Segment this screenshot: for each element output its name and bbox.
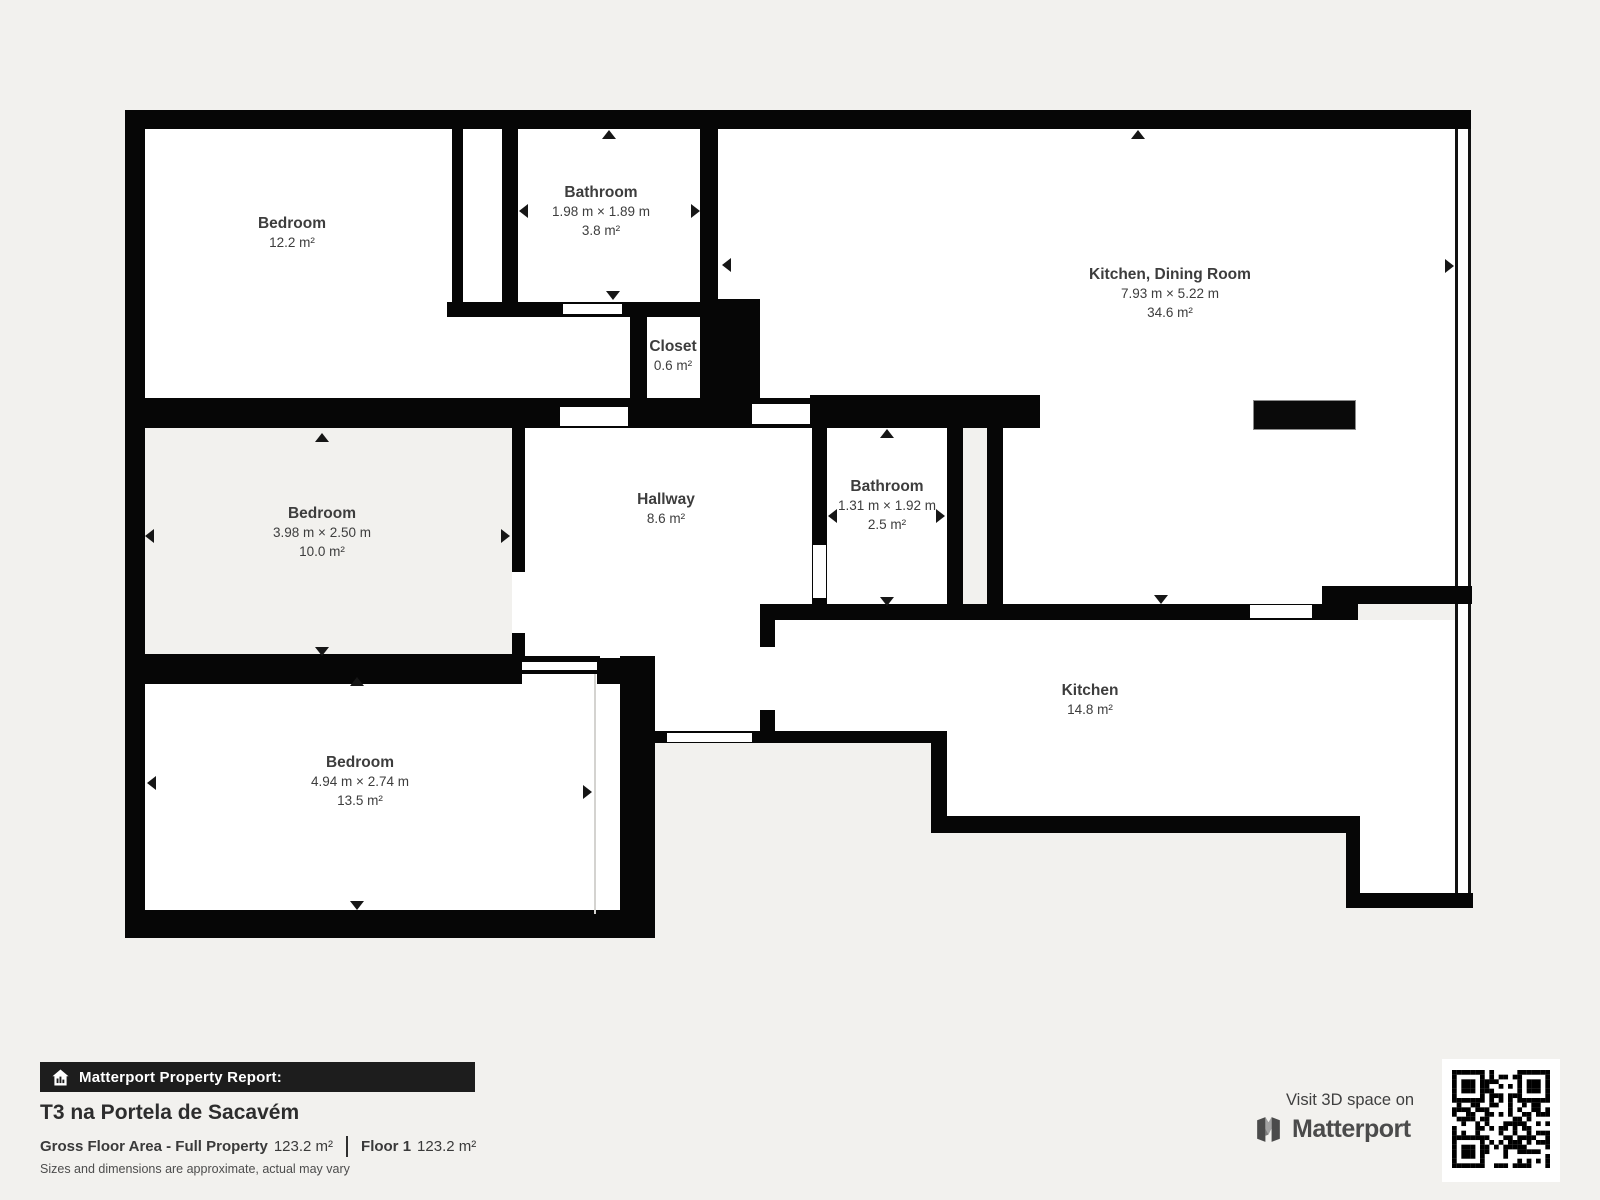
floor-area-summary: Gross Floor Area - Full Property 123.2 m…: [40, 1136, 476, 1157]
room-floor-shaft: [463, 128, 502, 302]
house-chart-icon: [52, 1069, 69, 1086]
wall: [810, 395, 1040, 428]
wall: [125, 654, 522, 684]
room-name: Hallway: [637, 490, 695, 509]
door-opening: [667, 733, 752, 742]
room-floor-kitchen-right: [1360, 620, 1457, 893]
dimension-arrow-left-icon: [519, 204, 528, 218]
gross-floor-area-label: Gross Floor Area - Full Property: [40, 1138, 268, 1155]
duct-void: [963, 425, 987, 605]
door-opening: [813, 545, 826, 598]
dimension-arrow-right-icon: [691, 204, 700, 218]
room-floor-bedroom-top-vestibule: [452, 317, 630, 407]
room-dimensions: 1.98 m × 1.89 m: [552, 202, 650, 221]
floor-value: 123.2 m²: [417, 1138, 476, 1155]
dimension-arrow-down-icon: [315, 647, 329, 656]
room-name: Kitchen: [1062, 681, 1119, 700]
wall: [700, 110, 718, 302]
room-area: 12.2 m²: [258, 233, 326, 252]
dimension-arrow-left-icon: [147, 776, 156, 790]
room-name: Closet: [649, 337, 696, 356]
wall: [620, 656, 655, 938]
room-floor-kitchen: [947, 620, 1360, 816]
room-label-bedroom-top: Bedroom 12.2 m²: [258, 214, 326, 252]
wall: [1322, 586, 1472, 604]
room-name: Bedroom: [311, 753, 409, 772]
disclaimer-note: Sizes and dimensions are approximate, ac…: [40, 1162, 350, 1176]
wall: [452, 110, 463, 302]
dimension-arrow-down-icon: [606, 291, 620, 300]
wall: [502, 110, 518, 302]
dimension-arrow-left-icon: [722, 258, 731, 272]
room-label-kitchen-dining: Kitchen, Dining Room 7.93 m × 5.22 m 34.…: [1089, 265, 1251, 322]
wall: [931, 731, 947, 820]
dimension-arrow-up-icon: [880, 429, 894, 438]
door-opening: [760, 647, 775, 710]
matterport-logo-icon: [1252, 1113, 1285, 1146]
wall: [1346, 893, 1473, 908]
matterport-wordmark: Matterport: [1292, 1115, 1411, 1144]
room-dimensions: 4.94 m × 2.74 m: [311, 772, 409, 791]
room-area: 3.8 m²: [552, 221, 650, 240]
room-floor-bedroom-top: [143, 128, 452, 407]
visit-3d-label: Visit 3D space on: [1286, 1091, 1414, 1110]
dimension-arrow-right-icon: [1445, 259, 1454, 273]
report-banner: Matterport Property Report:: [40, 1062, 475, 1092]
room-name: Bedroom: [258, 214, 326, 233]
door-opening: [560, 407, 628, 426]
room-dimensions: 7.93 m × 5.22 m: [1089, 284, 1251, 303]
room-label-bedroom-bottom: Bedroom 4.94 m × 2.74 m 13.5 m²: [311, 753, 409, 810]
room-name: Bathroom: [552, 183, 650, 202]
room-area: 14.8 m²: [1062, 700, 1119, 719]
window-inner-line: [1455, 129, 1458, 893]
dimension-arrow-left-icon: [145, 529, 154, 543]
kitchen-island: [1253, 400, 1356, 430]
report-banner-label: Matterport Property Report:: [79, 1069, 282, 1086]
matterport-logo[interactable]: Matterport: [1252, 1113, 1411, 1146]
closet-divider-line: [594, 674, 596, 914]
room-label-bathroom-top: Bathroom 1.98 m × 1.89 m 3.8 m²: [552, 183, 650, 240]
room-label-kitchen: Kitchen 14.8 m²: [1062, 681, 1119, 719]
room-name: Bedroom: [273, 504, 371, 523]
wall: [125, 910, 655, 938]
dimension-arrow-right-icon: [501, 529, 510, 543]
wall: [522, 670, 600, 674]
qr-code[interactable]: [1442, 1059, 1560, 1182]
room-name: Bathroom: [838, 477, 936, 496]
wall: [1346, 833, 1360, 893]
wall: [630, 317, 647, 398]
dimension-arrow-up-icon: [315, 433, 329, 442]
window: [1458, 129, 1468, 893]
room-area: 10.0 m²: [273, 542, 371, 561]
dimension-arrow-right-icon: [936, 509, 945, 523]
room-floor-kitchen-dining-lower: [1003, 398, 1457, 604]
page: { "colors": { "background": "#f2f1ee", "…: [0, 0, 1600, 1200]
gross-floor-area-value: 123.2 m²: [274, 1138, 333, 1155]
room-area: 13.5 m²: [311, 791, 409, 810]
room-floor-kitchen-wing: [775, 620, 947, 731]
door-opening: [563, 304, 622, 314]
room-floor-kitchen-dining: [718, 128, 1457, 398]
dimension-arrow-down-icon: [350, 901, 364, 910]
wall: [125, 110, 145, 938]
qr-pattern: [1452, 1070, 1550, 1168]
room-label-closet: Closet 0.6 m²: [649, 337, 696, 375]
window-outer-line: [1468, 129, 1471, 893]
floor-plan: Bedroom 12.2 m² Bathroom 1.98 m × 1.89 m…: [0, 0, 1600, 1200]
room-name: Kitchen, Dining Room: [1089, 265, 1251, 284]
door-opening: [522, 662, 597, 670]
separator: [346, 1136, 348, 1157]
room-area: 8.6 m²: [637, 509, 695, 528]
wall: [987, 425, 1003, 605]
room-area: 0.6 m²: [649, 356, 696, 375]
door-opening: [1250, 605, 1312, 618]
dimension-arrow-down-icon: [1154, 595, 1168, 604]
room-label-hallway: Hallway 8.6 m²: [637, 490, 695, 528]
dimension-arrow-up-icon: [1131, 130, 1145, 139]
room-dimensions: 3.98 m × 2.50 m: [273, 523, 371, 542]
room-area: 34.6 m²: [1089, 303, 1251, 322]
dimension-arrow-up-icon: [602, 130, 616, 139]
wall: [700, 299, 760, 428]
room-label-bathroom-mid: Bathroom 1.31 m × 1.92 m 2.5 m²: [838, 477, 936, 534]
property-title: T3 na Portela de Sacavém: [40, 1101, 299, 1125]
room-dimensions: 1.31 m × 1.92 m: [838, 496, 936, 515]
dimension-arrow-down-icon: [880, 597, 894, 606]
wall: [125, 110, 1471, 129]
door-opening: [752, 404, 810, 424]
wall: [931, 816, 1360, 833]
door-opening: [512, 572, 525, 633]
dimension-arrow-up-icon: [350, 677, 364, 686]
floor-label: Floor 1: [361, 1138, 411, 1155]
room-area: 2.5 m²: [838, 515, 936, 534]
room-label-bedroom-mid: Bedroom 3.98 m × 2.50 m 10.0 m²: [273, 504, 371, 561]
wall: [947, 425, 963, 605]
dimension-arrow-right-icon: [583, 785, 592, 799]
dimension-arrow-left-icon: [828, 509, 837, 523]
